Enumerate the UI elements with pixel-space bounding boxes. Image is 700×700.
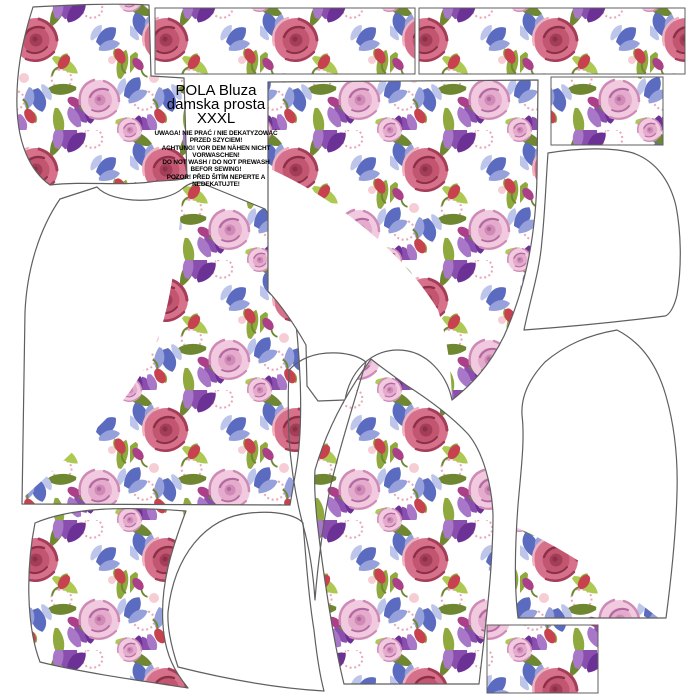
care-warning-line: PRZED SZYCIEM! [146, 137, 286, 144]
pattern-piece-border-strip-right [419, 8, 685, 74]
pattern-piece-front-bodice [0, 150, 301, 505]
care-warning-line: ACHTUNG! VOR DEM NÄHEN NICHT [146, 145, 286, 152]
pattern-sheet-graphic [0, 0, 700, 700]
pattern-piece-hood-outline-right [524, 149, 680, 330]
pattern-piece-swatch-top-right [551, 77, 663, 145]
pattern-size-label: XXXL [146, 112, 286, 126]
care-warning-list: UWAGA! NIE PRAĆ / NIE DEKATYZOWAĆPRZED S… [146, 130, 286, 188]
pattern-piece-border-strip-left [155, 8, 415, 74]
pattern-sheet: POLA Bluza damska prosta XXXL UWAGA! NIE… [0, 0, 700, 700]
care-warning-line: POZOR! PŘED ŠITÍM NEPERTE A [146, 174, 286, 181]
care-warning-line: UWAGA! NIE PRAĆ / NIE DEKATYZOWAĆ [146, 130, 286, 137]
pattern-piece-side-panel-bottom-left [29, 509, 188, 688]
pattern-piece-sleeve-floral [315, 359, 493, 684]
care-warning-line: BEFOR SEWING! [146, 166, 286, 173]
pattern-piece-sleeve-outline-lower [168, 512, 324, 691]
pattern-piece-back-panel [268, 80, 538, 401]
care-warning-line: VORWASCHEN! [146, 152, 286, 159]
care-warning-line: NEDEKATUJTE! [146, 181, 286, 188]
pattern-piece-swatch-bottom-right [487, 625, 598, 693]
care-warning-line: DO NOT WASH / DO NOT PREWASH [146, 159, 286, 166]
pattern-label-block: POLA Bluza damska prosta XXXL UWAGA! NIE… [146, 84, 286, 188]
